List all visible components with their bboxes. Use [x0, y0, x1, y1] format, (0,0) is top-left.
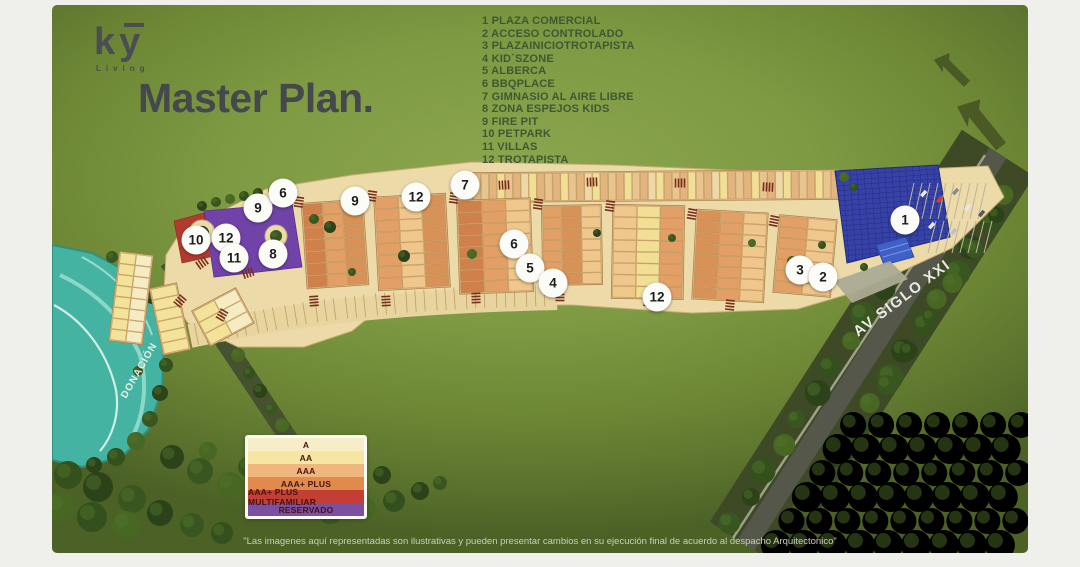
poi-item: 6 BBQPLACE: [482, 78, 635, 91]
map-marker-12: 12: [643, 283, 672, 312]
disclaimer-text: "Las imagenes aquí representadas son ilu…: [52, 536, 1028, 547]
lot-type-legend: AAAAAAAAA+ PLUSAAA+ PLUS MULTIFAMILIARRE…: [245, 435, 367, 519]
legend-row: AA: [248, 451, 364, 464]
legend-row: A: [248, 438, 364, 451]
logo-subtext: Living: [96, 64, 150, 73]
poi-item: 10 PETPARK: [482, 128, 635, 141]
master-plan-slide: AV SIGLO XXIDONACIÓN 1012118969127654123…: [52, 5, 1028, 553]
poi-item: 5 ALBERCA: [482, 65, 635, 78]
map-marker-10: 10: [182, 226, 211, 255]
poi-item: 9 FIRE PIT: [482, 116, 635, 129]
legend-row: AAA+ PLUS MULTIFAMILIAR: [248, 490, 364, 503]
north-arrows-icon: [912, 35, 1028, 165]
poi-legend-list: 1 PLAZA COMERCIAL2 ACCESO CONTROLADO3 PL…: [482, 15, 635, 166]
map-marker-2: 2: [809, 263, 838, 292]
map-marker-4: 4: [539, 269, 568, 298]
poi-item: 4 KID´SZONE: [482, 53, 635, 66]
poi-item: 2 ACCESO CONTROLADO: [482, 28, 635, 41]
poi-item: 7 GIMNASIO AL AIRE LIBRE: [482, 91, 635, 104]
map-marker-9: 9: [244, 194, 273, 223]
map-marker-6: 6: [269, 179, 298, 208]
map-marker-1: 1: [891, 206, 920, 235]
map-marker-7: 7: [451, 171, 480, 200]
map-marker-9: 9: [341, 187, 370, 216]
logo-overbar: [124, 23, 144, 27]
poi-item: 12 TROTAPISTA: [482, 154, 635, 167]
map-marker-11: 11: [220, 244, 249, 273]
legend-row: AAA: [248, 464, 364, 477]
poi-item: 11 VILLAS: [482, 141, 635, 154]
logo-text: ky: [94, 23, 150, 61]
brand-logo: ky Living: [94, 23, 150, 73]
poi-item: 3 PLAZAINICIOTROTAPISTA: [482, 40, 635, 53]
map-marker-12: 12: [402, 183, 431, 212]
poi-item: 8 ZONA ESPEJOS KIDS: [482, 103, 635, 116]
poi-item: 1 PLAZA COMERCIAL: [482, 15, 635, 28]
page-title: Master Plan.: [138, 75, 374, 122]
map-marker-8: 8: [259, 240, 288, 269]
